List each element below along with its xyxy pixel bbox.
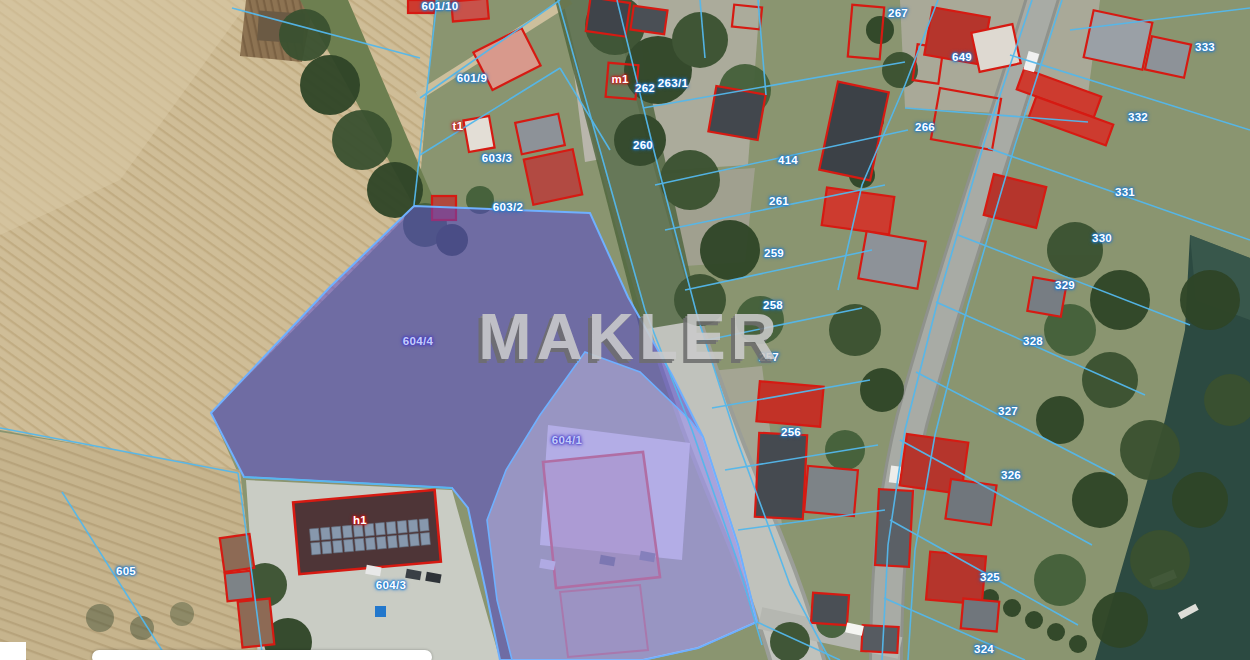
dumpster xyxy=(375,606,386,617)
building-t1 xyxy=(463,116,494,152)
aerial-map-canvas[interactable]: 601/10601/9603/3603/2m1t1h1262263/126026… xyxy=(0,0,1250,660)
attribution-panel xyxy=(92,650,432,660)
building-h1 xyxy=(293,490,441,574)
attribution-box xyxy=(0,642,26,660)
watermark: MAKLER xyxy=(478,300,782,374)
house-325 xyxy=(926,552,986,605)
